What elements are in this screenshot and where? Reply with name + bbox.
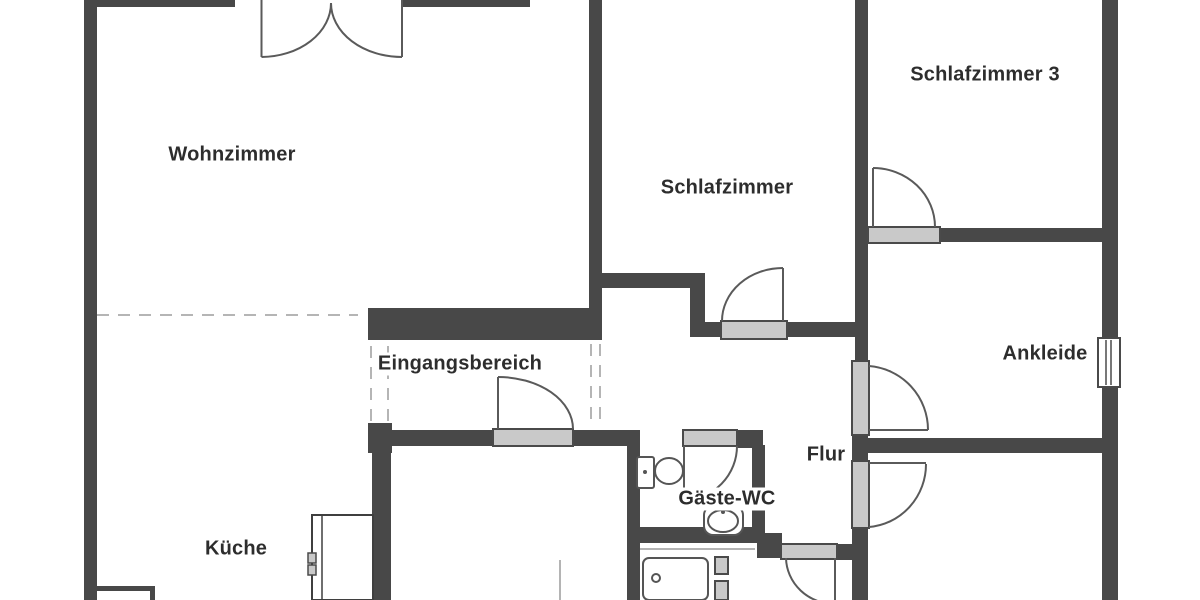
- room-label-ankleide: Ankleide: [1000, 343, 1091, 366]
- floor-plan: Wohnzimmer Schlafzimmer Schlafzimmer 3 E…: [0, 0, 1200, 600]
- door-sills: [493, 227, 940, 600]
- floor-plan-drawing: [0, 0, 1200, 600]
- wall-schlafzimmer3-left: [855, 0, 868, 362]
- kitchen-appliance-icon: [308, 515, 373, 600]
- sill-schlafzimmer3-door: [868, 227, 940, 243]
- wall-top-left: [84, 0, 235, 7]
- sill-bad-door: [781, 544, 837, 559]
- window-icon: [1098, 338, 1120, 387]
- wall-schlafzimmer-bottom-a: [690, 322, 722, 337]
- wall-right-exterior-lower: [1102, 387, 1118, 600]
- walls: [84, 0, 1118, 600]
- wall-bottom-left-niche-side: [150, 586, 155, 600]
- wall-flur-bottom-stub: [837, 544, 855, 560]
- wall-ankleide-bottom: [857, 438, 1103, 453]
- door-bad-icon: [786, 558, 835, 600]
- wall-schlafzimmer-bottom-b: [787, 322, 857, 337]
- wall-top-right: [402, 0, 530, 7]
- sill-schlafzimmer-door: [721, 321, 787, 339]
- wall-bottom-left-niche-top: [97, 586, 155, 591]
- wall-schlafzimmer-bottom-left: [602, 273, 690, 288]
- room-label-eingangsbereich: Eingangsbereich: [375, 353, 545, 376]
- wall-eingangsbereich-corner: [368, 423, 392, 453]
- room-label-schlafzimmer3: Schlafzimmer 3: [907, 64, 1063, 87]
- toilet-icon: [637, 457, 683, 488]
- door-eingangsbereich-icon: [498, 377, 573, 429]
- shower-icon: [643, 558, 708, 600]
- door-schlafzimmer3-icon: [873, 168, 935, 227]
- room-label-kueche: Küche: [202, 538, 270, 561]
- wall-eingangsbereich-top: [368, 308, 602, 340]
- wall-right-exterior-upper: [1102, 0, 1118, 339]
- sill-wc-door: [683, 430, 737, 446]
- room-label-wohnzimmer: Wohnzimmer: [165, 144, 298, 167]
- room-label-gaeste-wc: Gäste-WC: [675, 488, 778, 511]
- door-schlafzimmer-icon: [722, 268, 783, 321]
- room-label-schlafzimmer: Schlafzimmer: [658, 177, 796, 200]
- door-bottom-room-icon: [869, 463, 926, 527]
- sill-bad-partition-b: [715, 581, 728, 600]
- sill-ankleide-door: [852, 361, 869, 435]
- wall-kueche-right: [372, 450, 391, 600]
- room-label-flur: Flur: [804, 444, 849, 467]
- sill-bottom-room-door: [852, 461, 869, 528]
- wall-wohnzimmer-schlafzimmer: [589, 0, 602, 339]
- wall-flur-right-b: [852, 528, 868, 600]
- sill-eingangsbereich-door: [493, 429, 573, 446]
- double-door-icon: [262, 0, 403, 57]
- wall-wc-bottom: [640, 527, 765, 543]
- wall-left-exterior: [84, 0, 97, 600]
- door-ankleide-icon: [869, 366, 928, 430]
- wall-eingangsbereich-bottom-left: [390, 430, 493, 446]
- wall-flur-bottom-corner: [757, 533, 782, 558]
- sill-bad-partition-a: [715, 557, 728, 574]
